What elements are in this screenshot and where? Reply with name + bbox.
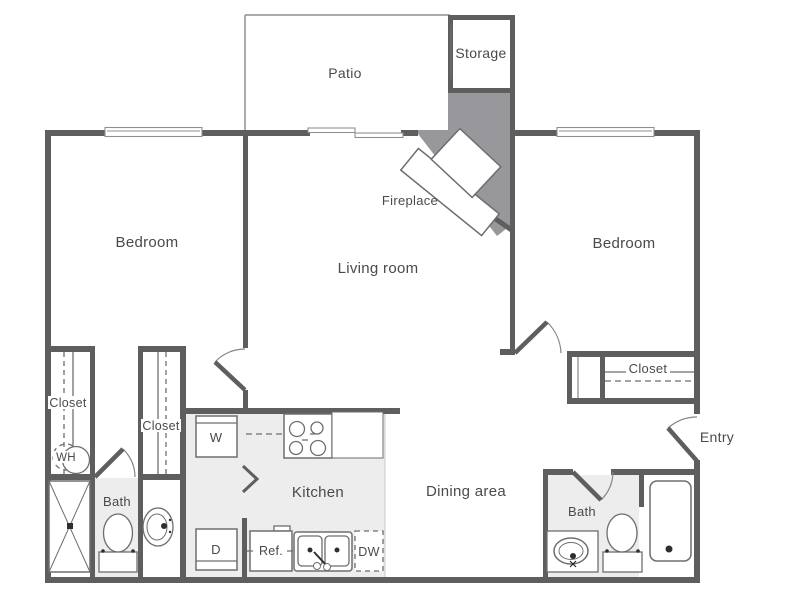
- storage-wall-top: [448, 15, 515, 20]
- dishwasher-label: DW: [358, 545, 379, 559]
- tub-wall-stub: [639, 475, 644, 507]
- wall-top: [198, 130, 310, 136]
- wall-bottom-exterior: [45, 577, 700, 583]
- kitchen-counter: [332, 412, 383, 458]
- entry-label: Entry: [700, 429, 734, 445]
- floorplan: Patio Storage Fireplace Bedroom Living r…: [0, 0, 800, 600]
- bath-left-label: Bath: [103, 494, 131, 509]
- fireplace-label: Fireplace: [382, 193, 438, 208]
- patio-label: Patio: [328, 65, 361, 81]
- wall-right-exterior-lower: [694, 460, 700, 583]
- bathtub: [650, 481, 691, 561]
- bath-right-wall-top: [611, 469, 700, 475]
- window-bedroom-right: [557, 128, 654, 137]
- floorplan-drawing: Patio Storage Fireplace Bedroom Living r…: [0, 0, 800, 600]
- sink-left: [143, 508, 173, 546]
- fridge-label: Ref.: [259, 544, 283, 558]
- water-heater-label: WH: [56, 452, 76, 464]
- bedroom-left-label: Bedroom: [116, 234, 179, 251]
- living-room-label: Living room: [338, 260, 419, 277]
- wall-top: [45, 130, 107, 136]
- sliding-door: [308, 128, 403, 138]
- laundry-wall-stub: [242, 518, 247, 577]
- bedroom-right-wall-bottom: [567, 351, 700, 357]
- door-jamb: [500, 349, 515, 355]
- closet-right-wall-bottom: [567, 398, 700, 404]
- closet-mid-wall-right: [180, 346, 186, 577]
- closet-right-label: Closet: [629, 361, 668, 376]
- hall-door: [215, 349, 245, 390]
- living-room-wall: [243, 130, 248, 348]
- storage-wall-bottom: [448, 88, 515, 93]
- shower: [49, 481, 90, 572]
- bath-right-label: Bath: [568, 504, 596, 519]
- window-bedroom-left: [105, 128, 202, 137]
- storage-label: Storage: [455, 45, 506, 61]
- bedroom-right-wall-left: [510, 15, 515, 355]
- closet-mid-label: Closet: [142, 419, 179, 433]
- dining-area-label: Dining area: [426, 483, 506, 500]
- kitchen-sink: [294, 532, 352, 571]
- wall-right-exterior-upper: [694, 130, 700, 414]
- closet-left-wall-bottom: [45, 474, 95, 480]
- bedroom-right-door: [515, 322, 561, 353]
- dryer-label: D: [211, 542, 221, 557]
- kitchen-label: Kitchen: [292, 484, 344, 501]
- closet-left-wall-top: [45, 346, 90, 352]
- closet-left-label: Closet: [49, 396, 86, 410]
- closet-right-divider: [600, 357, 605, 398]
- closet-mid-wall-bottom: [138, 474, 186, 480]
- bath-left-door: [95, 449, 135, 477]
- closet-mid-interior: [158, 352, 166, 474]
- wall-top: [513, 130, 559, 136]
- closet-mid-wall-left: [138, 346, 143, 577]
- entry-door: [668, 417, 697, 461]
- closet-mid-wall-top: [138, 346, 185, 352]
- sink-right: [547, 531, 598, 572]
- stove: [284, 414, 332, 458]
- bedroom-right-label: Bedroom: [593, 235, 656, 252]
- wall-top: [650, 130, 700, 136]
- closet-right-wall-left: [567, 351, 572, 404]
- washer-label: W: [210, 430, 223, 445]
